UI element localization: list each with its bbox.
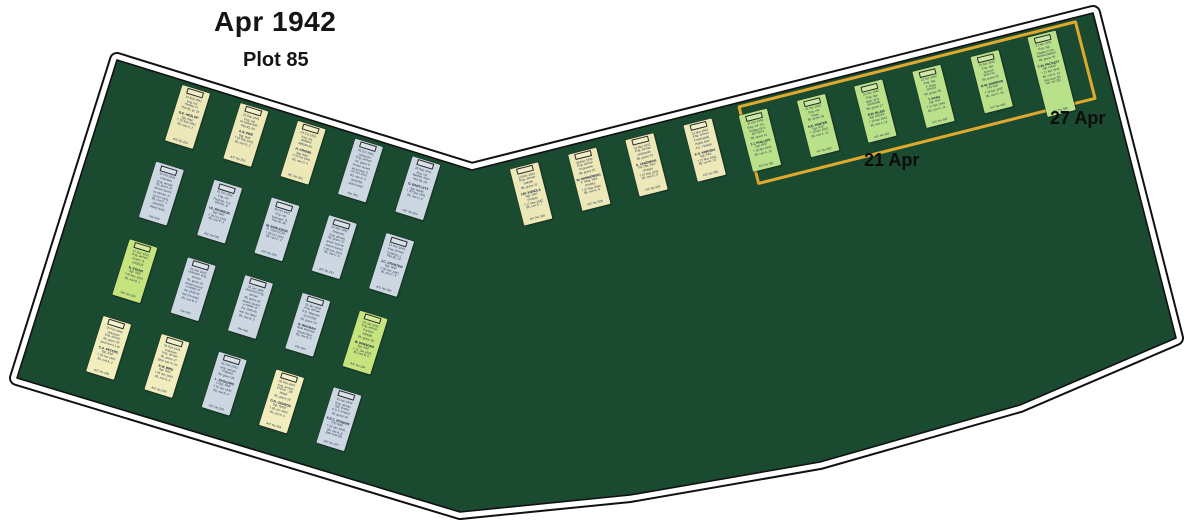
label-27-apr: 27 Apr xyxy=(1050,108,1105,129)
page-title: Apr 1942 xyxy=(214,6,336,38)
plot-number-label: Plot 85 xyxy=(243,49,309,72)
plot-map: Apr 1942 Plot 85 15 Sep 1941Eng. mil.Hes… xyxy=(0,0,1199,526)
label-21-apr: 21 Apr xyxy=(864,150,919,171)
